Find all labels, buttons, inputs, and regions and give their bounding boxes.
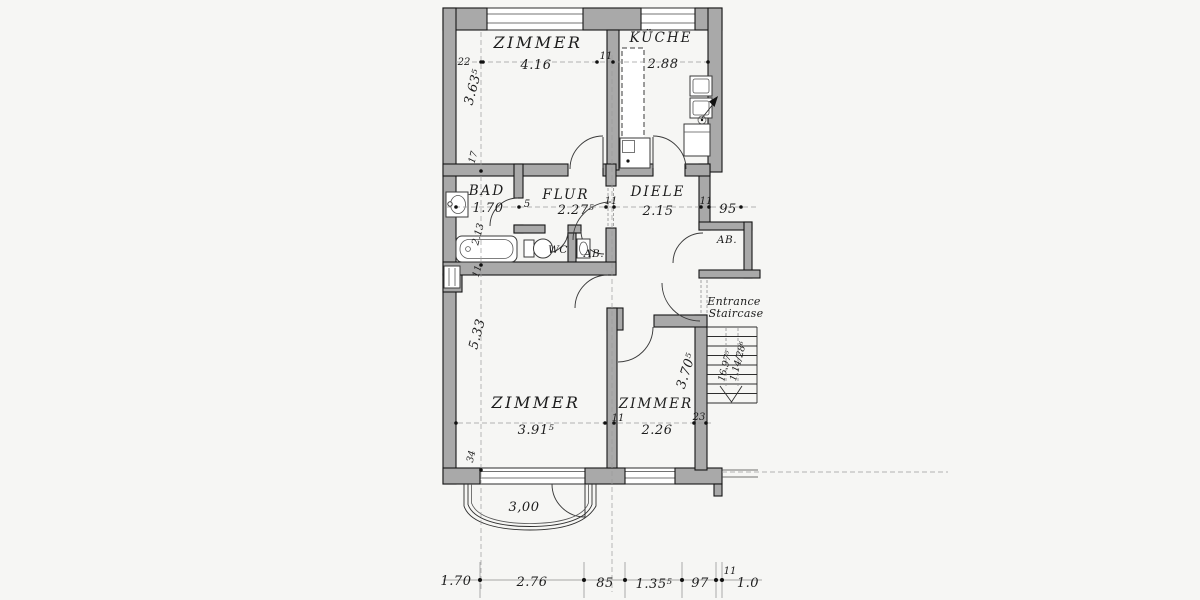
dim-balcony: 3,00 bbox=[509, 500, 540, 515]
tick-11-bottom: 11 bbox=[612, 413, 625, 424]
bottom-dim-170: 1.70 bbox=[441, 574, 472, 589]
door-arc-zimmer-top bbox=[570, 136, 603, 169]
dim-bad: 1.70 bbox=[473, 201, 504, 216]
bottom-dim-97: 97 bbox=[691, 576, 709, 591]
dim-95: 95 bbox=[719, 202, 737, 217]
door-arc-balcony bbox=[552, 484, 585, 517]
tick-22: 22 bbox=[457, 57, 471, 68]
stove bbox=[684, 124, 710, 156]
room-label-zimmer-br: ZIMMER bbox=[618, 396, 693, 412]
floor-plan-page: ZIMMER 4.16 22 11 KÜCHE 2.88 3.63⁵ 17 BA… bbox=[0, 0, 1200, 600]
room-label-kueche: KÜCHE bbox=[629, 29, 693, 46]
door-arc-zimmer-br bbox=[618, 327, 653, 362]
door-arc-ab-right bbox=[673, 233, 703, 263]
bottom-dim-11: 11 bbox=[724, 566, 737, 577]
kitchen-counter bbox=[620, 138, 650, 168]
tick-11-flur: 11 bbox=[605, 196, 618, 207]
dim-flur: 2.27⁵ bbox=[557, 203, 595, 218]
tick-23: 23 bbox=[692, 412, 706, 423]
dim-zimmer-br: 2.26 bbox=[641, 423, 673, 438]
door-arc-zimmer-bl bbox=[575, 275, 608, 308]
dim-zimmer-top: 4.16 bbox=[520, 58, 552, 73]
radiator bbox=[444, 266, 460, 288]
tick-17: 17 bbox=[467, 149, 481, 164]
tick-5: 5 bbox=[524, 199, 530, 210]
dim-363: 3.63⁵ bbox=[462, 67, 486, 107]
dim-kueche: 2.88 bbox=[647, 57, 679, 72]
left-wall bbox=[443, 8, 456, 484]
room-label-wc: WC bbox=[548, 244, 568, 256]
bottom-dim-276: 2.76 bbox=[516, 575, 548, 590]
room-label-flur: FLUR bbox=[541, 187, 589, 203]
bottom-dim-85: 85 bbox=[596, 576, 614, 591]
dim-zimmer-bl: 3.91⁵ bbox=[518, 423, 555, 438]
floor-plan-drawing: ZIMMER 4.16 22 11 KÜCHE 2.88 3.63⁵ 17 BA… bbox=[0, 0, 1200, 600]
bottom-dim-135: 1.35⁵ bbox=[636, 577, 673, 592]
dim-diele: 2.15 bbox=[642, 204, 674, 219]
room-label-ab-right: AB. bbox=[716, 234, 737, 246]
room-label-zimmer-bl: ZIMMER bbox=[491, 393, 581, 412]
room-label-ab-small: AB. bbox=[583, 248, 604, 260]
tick-11-diele: 11 bbox=[700, 196, 713, 207]
tick-11-top: 11 bbox=[600, 51, 613, 62]
room-label-diele: DIELE bbox=[630, 184, 686, 200]
bottom-dim-10: 1.0 bbox=[737, 576, 759, 591]
zimmer-br-right-wall bbox=[695, 315, 707, 470]
stair-direction-arrow-icon bbox=[720, 386, 742, 402]
toilet-tank bbox=[524, 240, 534, 257]
dim-533: 5.33 bbox=[466, 317, 489, 351]
entrance-label-line2: Staircase bbox=[709, 307, 764, 320]
room-label-bad: BAD bbox=[468, 183, 506, 199]
tick-34: 34 bbox=[465, 449, 478, 463]
door-arc-kueche bbox=[653, 136, 686, 169]
room-label-zimmer-top: ZIMMER bbox=[493, 33, 583, 52]
